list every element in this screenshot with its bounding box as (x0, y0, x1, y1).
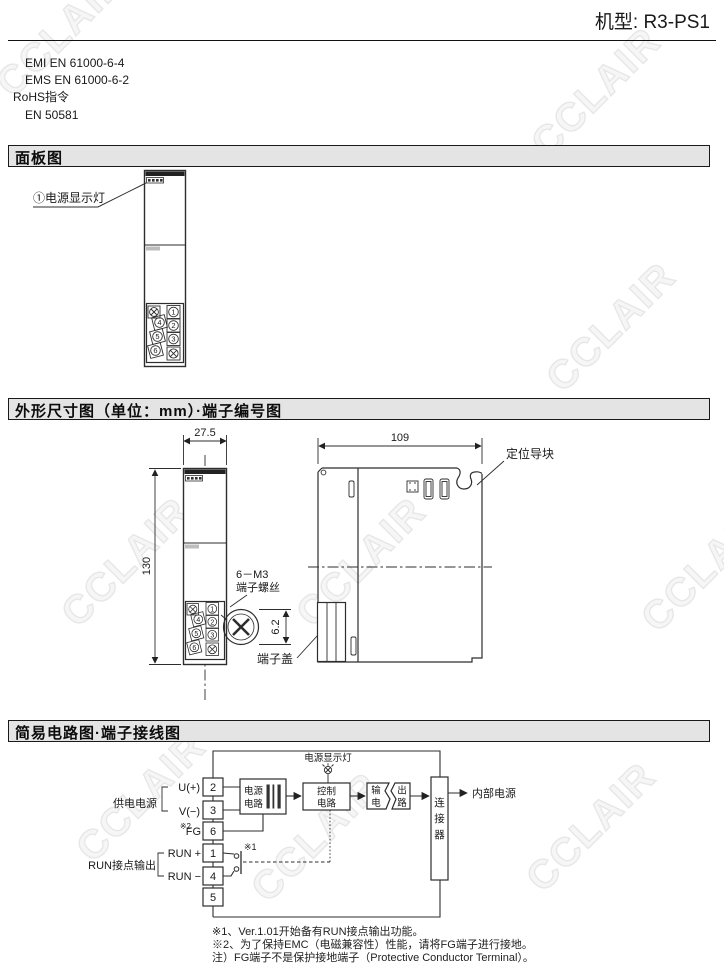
svg-text:连: 连 (434, 796, 445, 809)
power-lamp-icon (323, 763, 334, 783)
circuit-notes: ※1、Ver.1.01开始备有RUN接点输出功能。 ※2、为了保持EMC（电磁兼… (212, 926, 534, 965)
svg-text:接: 接 (434, 812, 445, 825)
side-view (308, 438, 504, 662)
svg-text:电: 电 (371, 797, 381, 809)
svg-text:1: 1 (210, 848, 216, 860)
header-divider (8, 40, 716, 41)
dim-130 (149, 469, 181, 665)
section-header-panel: 面板图 (8, 145, 710, 167)
svg-text:2: 2 (171, 321, 175, 330)
svg-text:内部电源: 内部电源 (472, 786, 516, 800)
svg-text:FG: FG (186, 826, 201, 838)
svg-text:路: 路 (397, 797, 407, 809)
cover-leader-line (297, 635, 318, 658)
label-brackets (158, 787, 168, 876)
svg-text:1: 1 (210, 606, 214, 613)
svg-text:V(−): V(−) (179, 806, 200, 818)
svg-text:6: 6 (192, 645, 196, 652)
dim-front-height-label: 130 (141, 557, 153, 575)
transformer-icon (267, 785, 281, 809)
svg-text:※1: ※1 (244, 842, 257, 852)
section-header-dims: 外形尺寸图（单位：mm）·端子编号图 (8, 398, 710, 420)
svg-text:输: 输 (371, 785, 381, 797)
svg-text:5: 5 (155, 332, 159, 341)
standard-rohs: RoHS指令 (13, 91, 69, 103)
screw-label-1: 6－M3 (236, 569, 268, 581)
svg-text:控制: 控制 (317, 786, 336, 798)
standard-ems: EMS EN 61000-6-2 (25, 74, 129, 86)
svg-text:5: 5 (210, 892, 216, 904)
svg-text:电路: 电路 (244, 798, 264, 810)
dim-screw-pitch-label: 6.2 (270, 619, 282, 634)
note-1: ※1、Ver.1.01开始备有RUN接点输出功能。 (212, 926, 534, 939)
svg-text:电源显示灯: 电源显示灯 (304, 752, 352, 764)
svg-text:电路: 电路 (317, 798, 337, 810)
svg-text:6: 6 (210, 826, 216, 838)
svg-text:4: 4 (196, 617, 200, 624)
svg-text:U(+): U(+) (178, 782, 200, 794)
page-title: 机型: R3-PS1 (595, 7, 710, 34)
led-label: ①电源显示灯 (33, 191, 105, 205)
note-2: ※2、为了保持EMC（电磁兼容性）性能，请将FG端子进行接地。 (212, 939, 534, 952)
cover-label: 端子盖 (257, 652, 293, 666)
circuit-diagram (158, 751, 467, 917)
svg-text:出: 出 (397, 785, 407, 797)
svg-text:1: 1 (171, 308, 175, 317)
dim-side-width-label: 109 (391, 432, 409, 444)
svg-text:3: 3 (210, 632, 214, 639)
svg-text:器: 器 (434, 829, 445, 841)
svg-text:3: 3 (171, 335, 175, 344)
svg-text:2: 2 (210, 619, 214, 626)
svg-text:RUN接点输出: RUN接点输出 (88, 858, 156, 872)
svg-text:电源: 电源 (244, 785, 264, 797)
svg-text:RUN +: RUN + (168, 848, 201, 860)
svg-text:供电电源: 供电电源 (113, 796, 157, 810)
guide-hook (457, 468, 482, 489)
svg-text:RUN −: RUN − (168, 871, 201, 883)
svg-text:6: 6 (153, 346, 157, 355)
guide-label: 定位导块 (506, 446, 554, 461)
datasheet-page: CCLAIR CCLAIR CCLAIR CCLAIR CCLAIR CCLAI… (0, 0, 724, 966)
terminal-cover (318, 603, 346, 662)
svg-text:4: 4 (157, 318, 161, 327)
screw-label-2: 端子螺丝 (236, 581, 280, 594)
note-3: 注）FG端子不是保护接地端子（Protective Conductor Term… (212, 952, 534, 965)
svg-text:4: 4 (210, 871, 216, 883)
section-header-circuit: 简易电路图·端子接线图 (8, 720, 710, 742)
circuit-labels: 2 3 6 1 4 5 U(+) V(−) 供电电源 ※2 FG RUN + R… (88, 752, 516, 904)
standard-en50581: EN 50581 (25, 109, 78, 121)
dim-front-width-label: 27.5 (194, 427, 215, 439)
svg-text:2: 2 (210, 782, 216, 794)
standard-emi: EMI EN 61000-6-4 (25, 57, 124, 69)
svg-text:5: 5 (194, 631, 198, 638)
svg-text:3: 3 (210, 805, 216, 817)
